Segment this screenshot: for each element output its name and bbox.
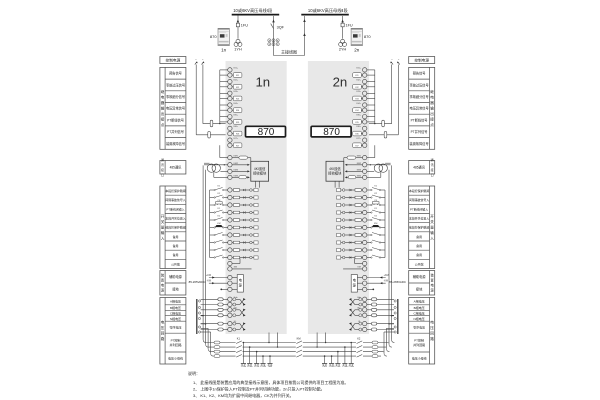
svg-text:KI1+: KI1+ <box>234 68 239 70</box>
svg-text:路: 路 <box>161 336 165 341</box>
svg-text:公共端: 公共端 <box>171 261 180 266</box>
svg-text:CK: CK <box>217 200 221 202</box>
svg-text:电压小母线: 电压小母线 <box>168 355 183 360</box>
svg-text:YMN': YMN' <box>267 366 273 368</box>
svg-text:PT断线闭锁入: PT断线闭锁入 <box>166 206 184 211</box>
svg-text:回: 回 <box>161 331 165 336</box>
svg-text:K2: K2 <box>374 193 377 195</box>
svg-text:10或6KV高压母线Ⅱ段: 10或6KV高压母线Ⅱ段 <box>308 7 349 14</box>
svg-text:PT断线信号: PT断线信号 <box>167 117 184 122</box>
svg-text:器: 器 <box>430 101 434 105</box>
svg-text:开: 开 <box>430 214 434 218</box>
svg-text:接地: 接地 <box>172 286 179 291</box>
svg-text:本段控保护跳闸: 本段控保护跳闸 <box>409 188 429 193</box>
svg-text:置: 置 <box>431 277 434 282</box>
svg-text:通: 通 <box>431 157 434 162</box>
svg-text:K1: K1 <box>237 336 241 340</box>
svg-text:Ubc: Ubc <box>357 307 361 309</box>
svg-text:备用: 备用 <box>416 243 422 248</box>
svg-text:KI2+: KI2+ <box>234 79 239 81</box>
svg-text:KM: KM <box>374 223 377 225</box>
svg-text:B相电压: B相电压 <box>414 305 425 310</box>
svg-text:~: ~ <box>202 59 204 62</box>
svg-text:2n: 2n <box>354 48 360 53</box>
svg-text:辅助电源: 辅助电源 <box>169 274 183 279</box>
svg-text:KI5+: KI5+ <box>356 115 361 117</box>
svg-text:事故细分信号: 事故细分信号 <box>410 94 429 99</box>
svg-text:YMN': YMN' <box>322 366 328 368</box>
svg-text:~: ~ <box>195 59 197 62</box>
svg-text:KI2+: KI2+ <box>356 79 361 81</box>
svg-text:K2: K2 <box>218 193 221 195</box>
svg-text:KM: KM <box>297 336 301 340</box>
svg-text:口: 口 <box>431 173 434 177</box>
svg-text:N相电压: N相电压 <box>170 316 181 321</box>
svg-text:备用: 备用 <box>173 243 179 248</box>
svg-text:870: 870 <box>258 127 275 138</box>
svg-text:接: 接 <box>161 167 164 172</box>
svg-text:压: 压 <box>430 326 434 330</box>
svg-text:量: 量 <box>430 224 434 229</box>
svg-text:备用: 备用 <box>416 252 422 257</box>
svg-text:K1: K1 <box>374 186 377 188</box>
svg-text:1YH: 1YH <box>234 47 242 51</box>
svg-text:电: 电 <box>430 95 434 100</box>
svg-text:KI3+: KI3+ <box>356 91 361 93</box>
svg-text:3、 K1、K2、KM均为扩展中间继电器，CK为并列开关。: 3、 K1、K2、KM均为扩展中间继电器，CK为并列开关。 <box>193 392 294 398</box>
svg-text:KI7+: KI7+ <box>234 138 239 140</box>
svg-text:KI1+: KI1+ <box>356 68 361 70</box>
svg-text:1n: 1n <box>221 48 227 53</box>
svg-text:KI7+: KI7+ <box>356 138 361 140</box>
svg-text:置: 置 <box>161 277 164 282</box>
svg-text:KI6+: KI6+ <box>234 126 239 128</box>
svg-text:1YMN: 1YMN <box>260 366 266 368</box>
svg-text:~: ~ <box>398 59 400 62</box>
svg-text:1FU: 1FU <box>346 24 353 28</box>
svg-text:说明：: 说明： <box>188 370 200 376</box>
svg-text:他段控保护跳闸: 他段控保护跳闸 <box>409 225 429 230</box>
svg-text:控制电源: 控制电源 <box>166 58 181 63</box>
svg-text:接地: 接地 <box>416 286 423 291</box>
svg-text:接收模块: 接收模块 <box>253 171 267 176</box>
svg-text:K1: K1 <box>218 208 221 210</box>
svg-text:事故过压信号: 事故过压信号 <box>410 82 429 87</box>
svg-text:输: 输 <box>161 230 165 235</box>
svg-text:PT断线闭锁入: PT断线闭锁入 <box>410 206 428 211</box>
svg-text:关: 关 <box>161 219 165 224</box>
svg-text:间隔事故信号入: 间隔事故信号入 <box>165 197 185 202</box>
svg-text:回: 回 <box>430 331 434 336</box>
svg-text:事故过压信号: 事故过压信号 <box>166 82 185 87</box>
svg-text:预告信号: 预告信号 <box>169 71 182 76</box>
svg-text:讯: 讯 <box>431 162 434 167</box>
svg-text:接: 接 <box>431 167 434 172</box>
svg-text:控制电源: 控制电源 <box>414 58 429 63</box>
svg-text:1YMc: 1YMc <box>254 366 259 368</box>
svg-text:KI4+: KI4+ <box>356 103 361 105</box>
svg-text:485通讯: 485通讯 <box>170 165 183 170</box>
svg-text:PT并列信号: PT并列信号 <box>167 129 184 134</box>
svg-text:2、 上图中1n保护投入PT控制及PT并列切换功能，2n只投: 2、 上图中1n保护投入PT控制及PT并列切换功能，2n只投入PT控制功能。 <box>193 386 325 392</box>
svg-text:1n: 1n <box>255 75 270 90</box>
svg-text:并列回路: 并列回路 <box>413 342 425 347</box>
svg-text:点: 点 <box>430 122 434 127</box>
svg-text:A相电压: A相电压 <box>414 299 425 304</box>
svg-text:2YH: 2YH <box>339 47 347 51</box>
svg-text:2YMN: 2YMN <box>329 366 335 368</box>
svg-text:输: 输 <box>430 230 434 235</box>
svg-text:10或6KV高压母线Ⅰ段: 10或6KV高压母线Ⅰ段 <box>233 7 273 14</box>
svg-text:电压异常信号: 电压异常信号 <box>166 106 185 111</box>
svg-text:1FU: 1FU <box>241 24 248 28</box>
svg-text:开: 开 <box>161 214 165 218</box>
svg-text:2YMa: 2YMa <box>348 366 354 368</box>
svg-text:870: 870 <box>210 34 217 39</box>
svg-text:事故细分信号: 事故细分信号 <box>166 94 185 99</box>
svg-text:输: 输 <box>161 106 165 111</box>
svg-text:电压异常信号: 电压异常信号 <box>410 106 429 111</box>
svg-text:装置故障信号: 装置故障信号 <box>410 141 429 146</box>
svg-text:4KI遥信: 4KI遥信 <box>329 166 341 171</box>
svg-text:870: 870 <box>364 34 371 39</box>
svg-text:关: 关 <box>430 219 434 224</box>
svg-text:口: 口 <box>161 173 164 177</box>
svg-text:本段控保护跳闸: 本段控保护跳闸 <box>165 188 185 193</box>
svg-text:C相电压: C相电压 <box>414 310 425 315</box>
svg-text:出: 出 <box>430 111 434 116</box>
svg-text:PT控制: PT控制 <box>414 338 424 343</box>
svg-text:本段开关位置入: 本段开关位置入 <box>409 215 429 220</box>
svg-text:讯: 讯 <box>161 162 164 167</box>
svg-text:A相电压: A相电压 <box>170 299 181 304</box>
svg-text:预告信号: 预告信号 <box>413 71 426 76</box>
svg-text:通: 通 <box>161 157 164 162</box>
svg-text:K2: K2 <box>374 216 377 218</box>
svg-text:备用: 备用 <box>416 234 422 239</box>
svg-text:2YMb: 2YMb <box>342 366 348 368</box>
svg-text:870: 870 <box>323 127 340 138</box>
svg-text:接收模块: 接收模块 <box>328 171 342 176</box>
svg-text:入: 入 <box>430 235 434 240</box>
svg-text:入: 入 <box>161 235 165 240</box>
svg-text:KM: KM <box>217 223 220 225</box>
svg-text:K1: K1 <box>218 186 221 188</box>
svg-text:他段控保护跳闸: 他段控保护跳闸 <box>165 225 185 230</box>
svg-text:电: 电 <box>430 320 434 325</box>
svg-text:4KI遥信: 4KI遥信 <box>254 166 266 171</box>
svg-text:辅助电源: 辅助电源 <box>413 274 427 279</box>
svg-text:压: 压 <box>161 326 165 330</box>
svg-text:PT并列信号: PT并列信号 <box>411 129 428 134</box>
svg-text:N相电压: N相电压 <box>414 316 425 321</box>
svg-text:量: 量 <box>161 224 165 229</box>
svg-text:Ubc: Ubc <box>234 307 238 309</box>
svg-text:1、 此接线图是装置应用的典型接线示意图，具体项目按我公司提: 1、 此接线图是装置应用的典型接线示意图，具体项目按我公司提供的项目工程图为准。 <box>193 379 348 385</box>
svg-text:本段开关位置入: 本段开关位置入 <box>165 215 185 220</box>
svg-text:K2: K2 <box>357 336 361 340</box>
svg-text:+KM: +KM <box>206 274 211 277</box>
svg-text:K1: K1 <box>374 208 377 210</box>
svg-text:3QF: 3QF <box>277 25 285 29</box>
svg-text:继: 继 <box>161 89 165 94</box>
svg-text:器: 器 <box>161 101 165 105</box>
svg-text:间隔事故信号入: 间隔事故信号入 <box>409 197 429 202</box>
svg-text:CK: CK <box>374 200 378 202</box>
svg-text:路: 路 <box>430 336 434 341</box>
svg-text:-KM: -KM <box>384 280 388 283</box>
svg-text:主接线图: 主接线图 <box>281 48 297 54</box>
svg-text:装置故障信号: 装置故障信号 <box>166 141 185 146</box>
svg-text:2YMc: 2YMc <box>335 366 340 368</box>
svg-text:备用: 备用 <box>173 234 179 239</box>
svg-text:接: 接 <box>430 117 434 122</box>
svg-text:零序电压: 零序电压 <box>413 325 425 330</box>
svg-text:+KM: +KM <box>384 274 389 277</box>
svg-text:公共端: 公共端 <box>415 261 424 266</box>
svg-text:K2: K2 <box>218 216 221 218</box>
svg-text:1YMb: 1YMb <box>247 366 253 368</box>
svg-text:B相电压: B相电压 <box>170 305 181 310</box>
svg-text:KM: KM <box>358 267 361 269</box>
svg-text:KM: KM <box>234 267 237 269</box>
svg-text:电压小母线: 电压小母线 <box>412 355 427 360</box>
svg-text:点: 点 <box>161 122 165 127</box>
svg-text:KI3+: KI3+ <box>234 91 239 93</box>
svg-text:并列回路: 并列回路 <box>169 342 181 347</box>
svg-text:继: 继 <box>430 89 434 94</box>
svg-text:PT控制: PT控制 <box>171 338 181 343</box>
svg-text:备用: 备用 <box>173 252 179 257</box>
svg-text:KI5+: KI5+ <box>234 115 239 117</box>
svg-text:485通讯: 485通讯 <box>413 165 426 170</box>
svg-text:电: 电 <box>161 95 165 100</box>
svg-text:KI6+: KI6+ <box>356 126 361 128</box>
svg-text:电: 电 <box>161 320 165 325</box>
svg-text:输: 输 <box>430 106 434 111</box>
svg-text:接: 接 <box>161 117 165 122</box>
svg-text:零序电压: 零序电压 <box>169 325 181 330</box>
svg-text:2n: 2n <box>333 75 348 90</box>
svg-text:出: 出 <box>161 111 165 116</box>
svg-text:PT断线信号: PT断线信号 <box>411 117 428 122</box>
svg-text:C相电压: C相电压 <box>170 310 181 315</box>
svg-text:~: ~ <box>391 59 393 62</box>
svg-text:-KM: -KM <box>207 280 211 283</box>
svg-text:KI4+: KI4+ <box>234 103 239 105</box>
